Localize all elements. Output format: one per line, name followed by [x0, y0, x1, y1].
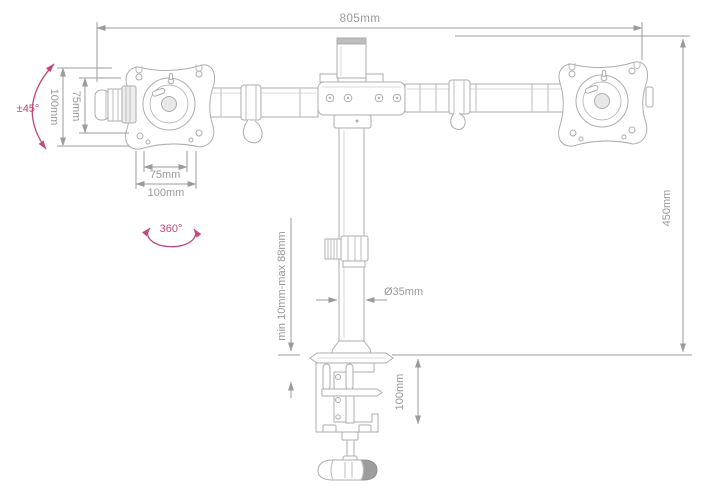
screw-icon	[375, 94, 383, 102]
clamp-knob	[318, 460, 377, 480]
screw-icon	[344, 94, 352, 102]
dim-plate-height-outer-label: 100mm	[48, 89, 60, 126]
clamp-lower-jaw	[322, 389, 382, 396]
pole-diameter-label: Ø35mm	[384, 286, 423, 298]
dim-plate-width-outer-label: 100mm	[148, 187, 185, 199]
cable-clip-right	[451, 113, 465, 129]
height-adjust-collar	[325, 236, 368, 267]
screw-icon	[393, 94, 401, 102]
dim-pole-height-label: 450mm	[661, 190, 673, 227]
left-vesa-plate	[126, 65, 215, 150]
swivel-range-label: 360°	[160, 223, 183, 235]
clamp-opening-label: min 10mm-max 88mm	[276, 231, 288, 340]
diagram-canvas: 805mm 450mm 100mm 75mm 75mm 100mm ±45° 3…	[0, 0, 701, 492]
screw-icon	[326, 94, 334, 102]
keyhole-slot	[168, 74, 174, 84]
clamp-screw-rod	[346, 396, 354, 423]
dim-plate-height-inner-label: 75mm	[70, 91, 82, 122]
desk-clamp	[310, 353, 393, 480]
technical-drawing-page: 805mm 450mm 100mm 75mm 75mm 100mm ±45° 3…	[0, 0, 701, 492]
clamp-height-label: 100mm	[394, 374, 406, 411]
dim-plate-width-inner-label: 75mm	[150, 169, 181, 181]
right-vesa-plate	[559, 62, 653, 147]
dim-overall-width-label: 805mm	[340, 13, 381, 25]
cable-clip-left	[243, 120, 262, 143]
keyhole-slot	[601, 71, 607, 81]
tilt-range-label: ±45°	[17, 103, 40, 115]
crossbar-right-arm	[405, 80, 565, 129]
center-joint-block	[318, 82, 405, 128]
left-tilt-knob	[95, 86, 136, 123]
